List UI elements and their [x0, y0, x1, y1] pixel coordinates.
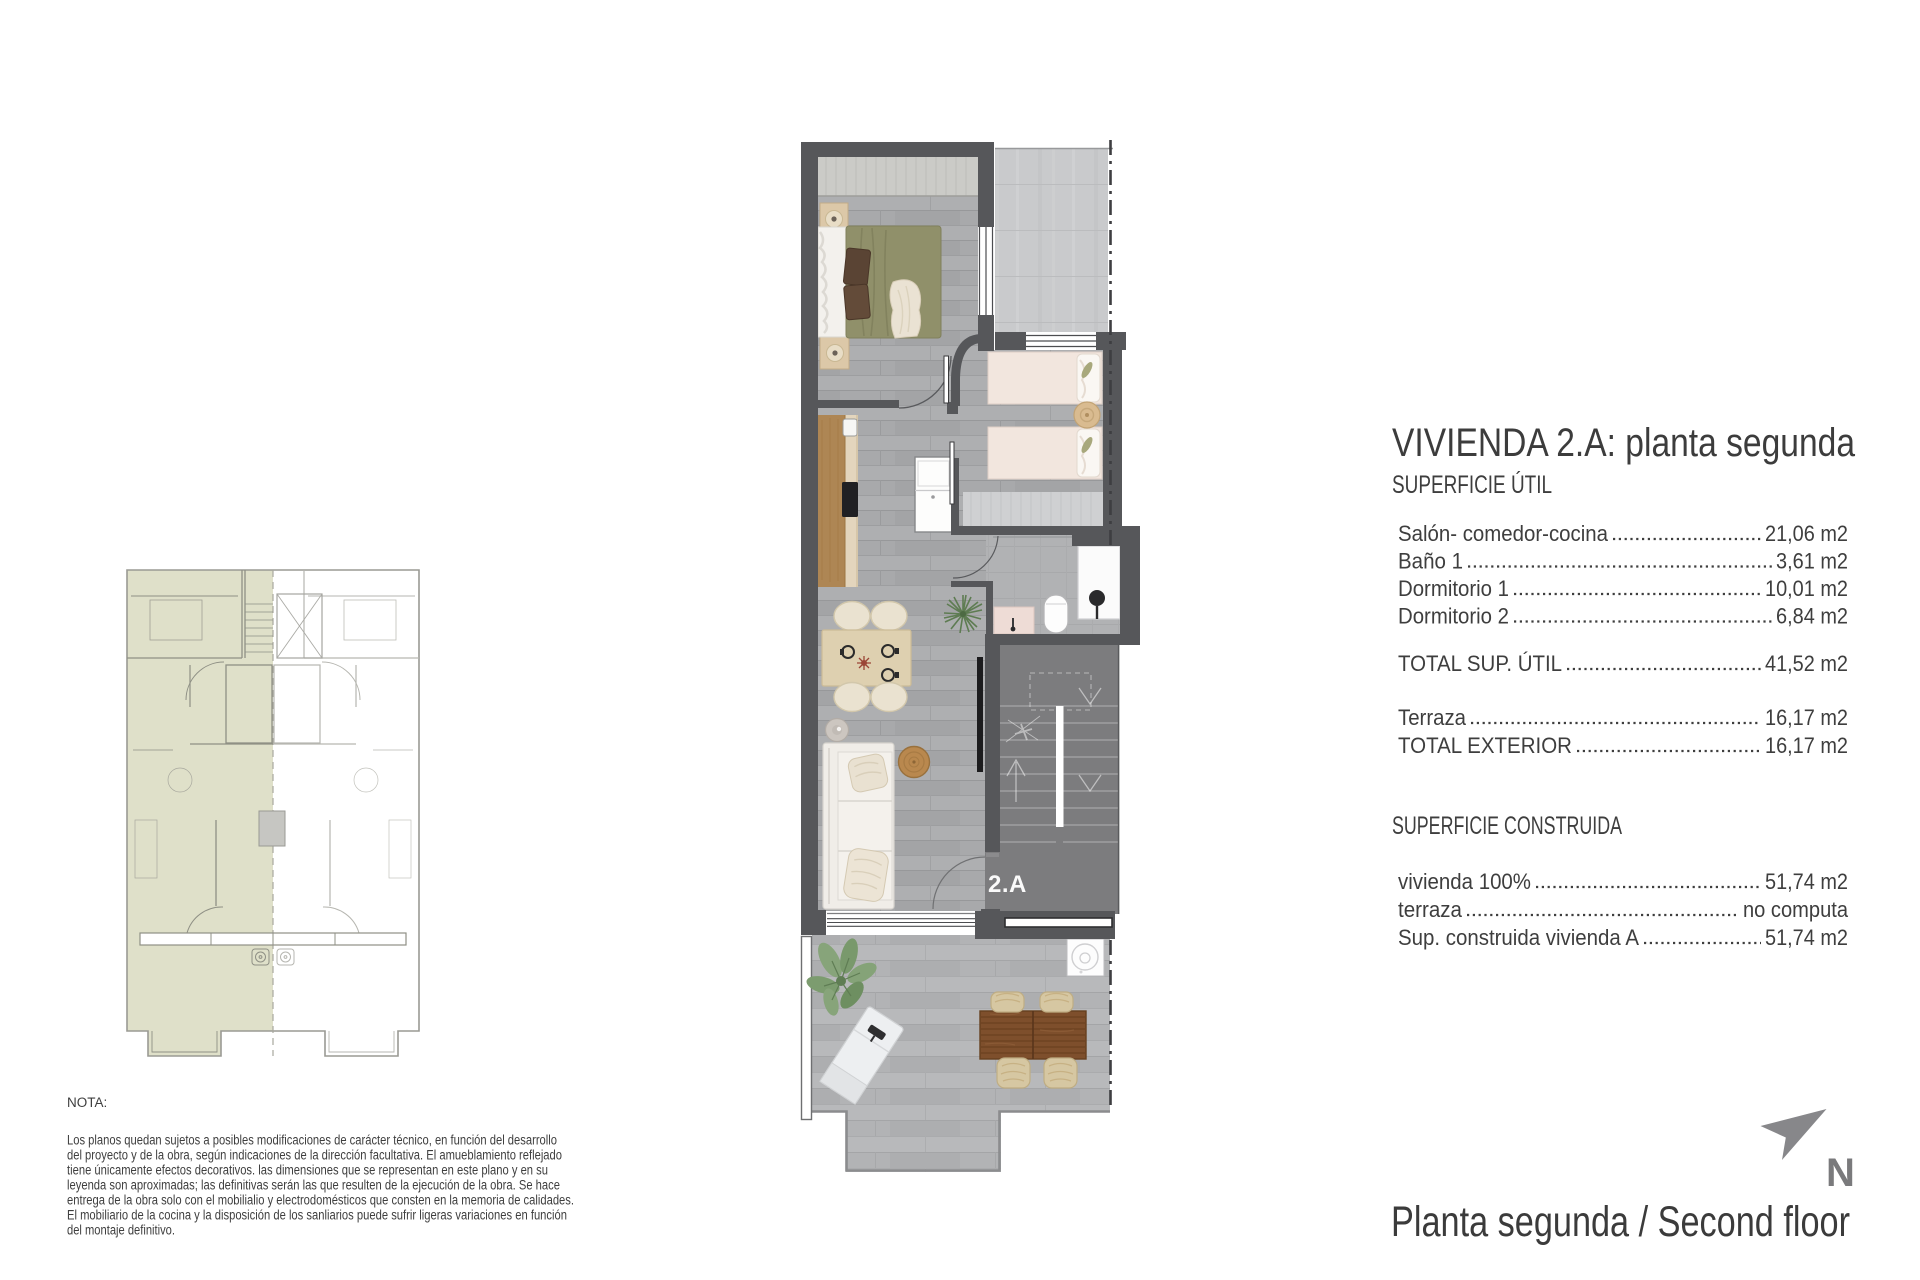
svg-text:del proyecto y de la obra, seg: del proyecto y de la obra, según indicac… [67, 1148, 562, 1163]
svg-text:51,74 m2: 51,74 m2 [1765, 869, 1848, 894]
svg-text:TOTAL EXTERIOR: TOTAL EXTERIOR [1398, 733, 1572, 758]
svg-text:Planta segunda / Second floor: Planta segunda / Second floor [1391, 1198, 1850, 1246]
svg-text:3,61 m2: 3,61 m2 [1776, 549, 1848, 574]
svg-text:Salón- comedor-cocina: Salón- comedor-cocina [1398, 521, 1609, 546]
svg-text:SUPERFICIE CONSTRUIDA: SUPERFICIE CONSTRUIDA [1392, 812, 1622, 840]
svg-text:Los planos quedan sujetos a po: Los planos quedan sujetos a posibles mod… [67, 1133, 557, 1148]
svg-text:entrega de la obra solo con el: entrega de la obra solo con el mobiliali… [67, 1193, 574, 1208]
svg-text:10,01 m2: 10,01 m2 [1765, 576, 1848, 601]
svg-text:41,52 m2: 41,52 m2 [1765, 651, 1848, 676]
svg-text:21,06 m2: 21,06 m2 [1765, 521, 1848, 546]
svg-text:51,74 m2: 51,74 m2 [1765, 925, 1848, 950]
svg-text:Dormitorio 1: Dormitorio 1 [1398, 576, 1509, 601]
svg-text:SUPERFICIE ÚTIL: SUPERFICIE ÚTIL [1392, 470, 1552, 499]
svg-text:Dormitorio 2: Dormitorio 2 [1398, 604, 1509, 629]
svg-text:16,17 m2: 16,17 m2 [1765, 705, 1848, 730]
svg-text:El mobiliario de la cocina y l: El mobiliario de la cocina y la disposic… [67, 1208, 567, 1223]
svg-text:NOTA:: NOTA: [67, 1095, 107, 1110]
svg-text:6,84 m2: 6,84 m2 [1776, 604, 1848, 629]
svg-text:Terraza: Terraza [1398, 705, 1467, 730]
svg-text:VIVIENDA 2.A: planta segunda: VIVIENDA 2.A: planta segunda [1392, 421, 1856, 465]
svg-text:TOTAL SUP. ÚTIL: TOTAL SUP. ÚTIL [1398, 651, 1562, 676]
svg-text:16,17 m2: 16,17 m2 [1765, 733, 1848, 758]
svg-text:vivienda 100%: vivienda 100% [1398, 869, 1531, 894]
svg-text:terraza: terraza [1398, 897, 1463, 922]
svg-text:Baño 1: Baño 1 [1398, 549, 1463, 574]
svg-text:tiene únicamente efectos decor: tiene únicamente efectos decorativos. la… [67, 1163, 548, 1178]
svg-text:del montaje definitivo.: del montaje definitivo. [67, 1223, 175, 1238]
svg-text:2.A: 2.A [988, 871, 1027, 898]
svg-text:N: N [1826, 1151, 1855, 1195]
svg-text:no computa: no computa [1743, 897, 1849, 922]
svg-text:Sup. construida vivienda A: Sup. construida vivienda A [1398, 925, 1639, 950]
svg-text:leyenda son aproximadas; las d: leyenda son aproximadas; las definitivas… [67, 1178, 560, 1193]
